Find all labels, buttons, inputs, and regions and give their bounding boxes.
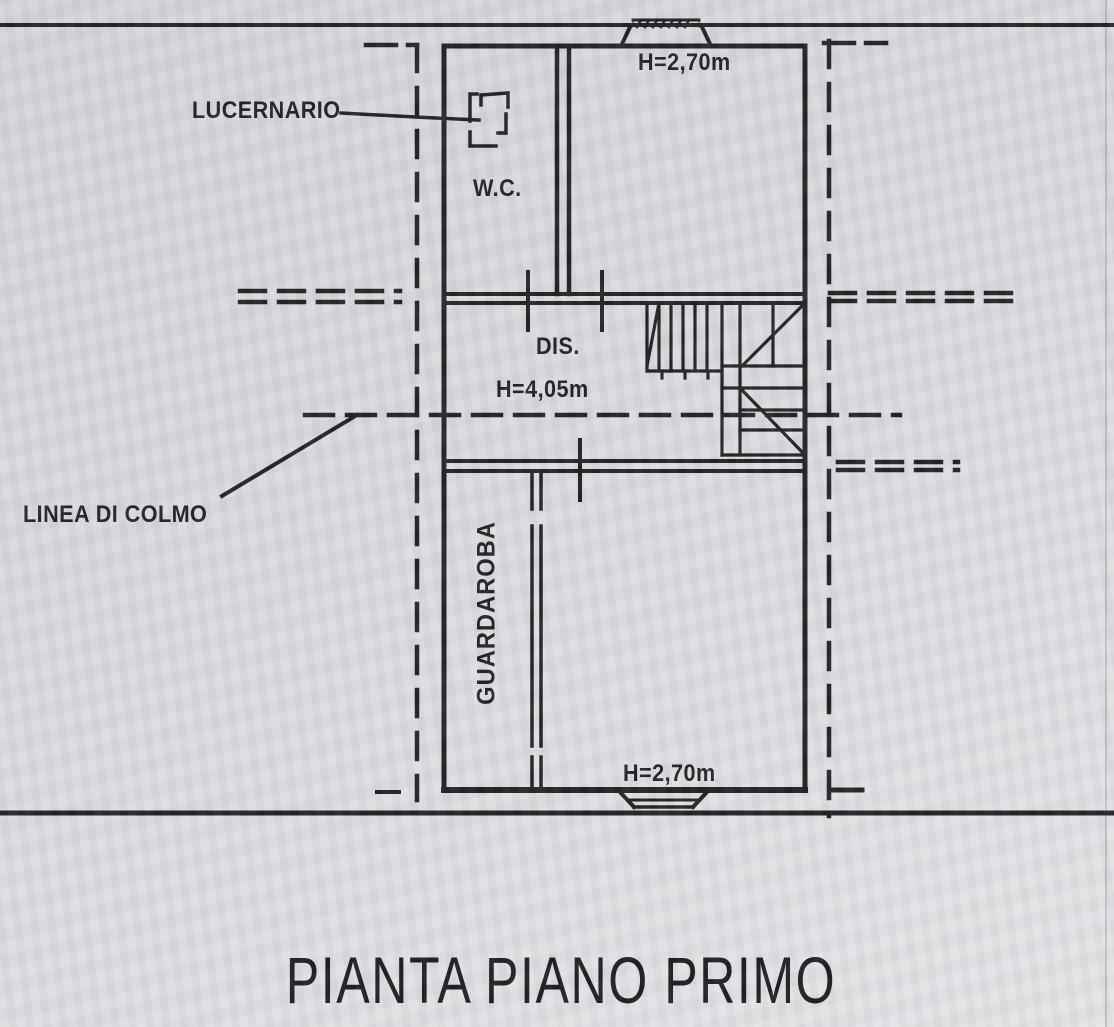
colmo-leader-line <box>222 415 357 496</box>
page-title: PIANTA PIANO PRIMO <box>286 942 836 1018</box>
lucernario-leader-line <box>341 113 479 120</box>
height-label-top-room: H=2,70m <box>638 49 731 77</box>
double-dash-right-upper <box>830 293 1020 301</box>
staircase <box>647 303 805 455</box>
room-label-guardaroba: GUARDAROBA <box>473 521 502 705</box>
linea-di-colmo-label: LINEA DI COLMO <box>23 501 207 529</box>
chimney-bottom <box>620 792 707 807</box>
floor-plan-page: LUCERNARIO W.C. H=2,70m DIS. H=4,05m GUA… <box>0 0 1114 1027</box>
double-dash-right-lower <box>838 462 958 470</box>
dis-bottom-double-wall <box>444 440 805 500</box>
roof-dashed-lines <box>240 41 1020 816</box>
double-dash-left <box>240 291 400 302</box>
leader-lines <box>222 113 479 496</box>
wc-divider-wall <box>557 46 569 294</box>
guardaroba-partition-wall <box>532 473 541 788</box>
room-label-dis: DIS. <box>536 333 580 361</box>
upper-double-wall <box>444 272 805 330</box>
height-label-dis: H=4,05m <box>496 376 589 404</box>
lucernario-label: LUCERNARIO <box>192 97 341 125</box>
room-label-wc: W.C. <box>473 175 522 203</box>
building-walls <box>444 46 862 790</box>
height-label-bottom-room: H=2,70m <box>623 760 716 788</box>
